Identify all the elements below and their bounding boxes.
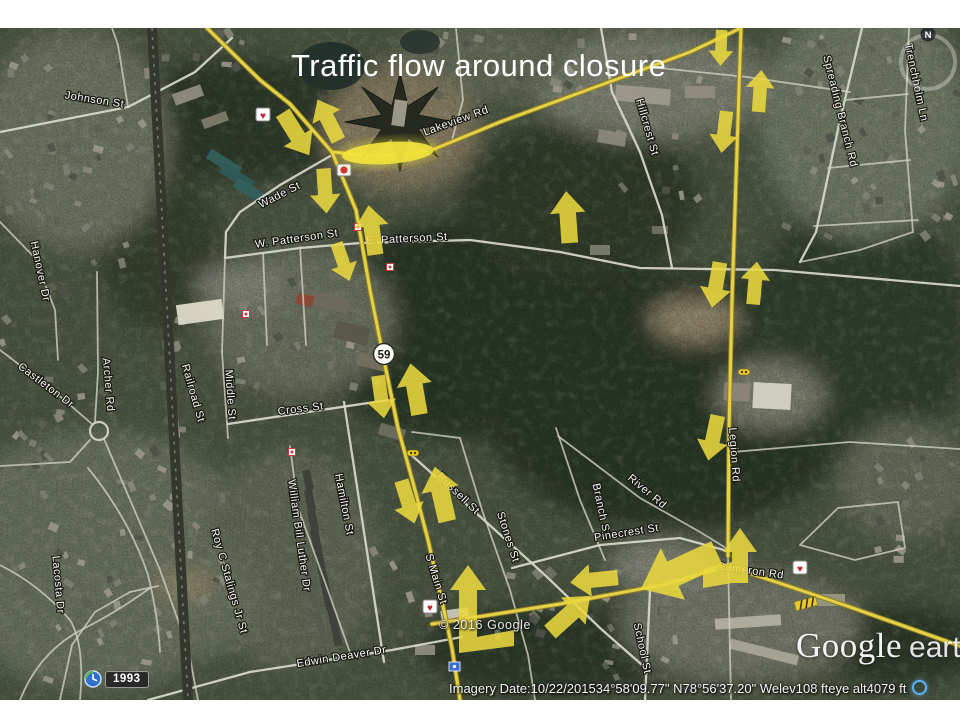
copyright-watermark: © 2016 Google [439,618,531,632]
imagery-date-label: Imagery Date: [449,681,531,696]
historical-imagery-control[interactable]: 1993 [84,670,149,688]
satellite-map-viewport[interactable]: ♥ ♥ ♥ [0,28,960,700]
slide-title: Traffic flow around closure [291,48,666,84]
traffic-signal-icon [407,450,419,456]
eye-altitude-value: 4079 ft [867,681,907,696]
traffic-signal-icon [738,369,750,375]
svg-text:♥: ♥ [427,603,433,614]
svg-text:♥: ♥ [797,564,803,575]
elevation-value: 108 ft [796,681,829,696]
streaming-status-icon [912,680,927,695]
camera-placemark-icon [337,164,351,176]
compass-north-label: N [925,30,932,41]
slide-canvas: ♥ ♥ ♥ [0,0,960,720]
hospital-placemark-icon: ♥ [423,600,437,614]
poi-square-icon [387,264,394,271]
status-bar: Imagery Date:10/22/201534°58'09.77" N78°… [449,680,954,696]
route-59-shield: 59 [374,344,395,365]
clock-icon [84,670,102,688]
svg-text:♥: ♥ [260,111,266,122]
eye-altitude-label: eye alt [828,681,866,696]
route-shield-number: 59 [378,350,391,362]
google-earth-logo: Googleearth [796,626,960,666]
hospital-placemark-icon: ♥ [256,108,270,122]
lodging-icon [449,662,460,671]
latitude-value: 34°58'09.77" N [596,681,683,696]
google-logo-text: Google [796,626,902,665]
elevation-label: elev [772,681,796,696]
longitude-value: 78°56'37.20" W [682,681,771,696]
imagery-date-value: 10/22/2015 [531,681,596,696]
imagery-year-badge: 1993 [105,671,149,688]
earth-logo-text: earth [909,631,960,664]
hospital-placemark-icon: ♥ [793,561,807,575]
poi-square-icon [289,449,296,456]
poi-square-icon [243,311,250,318]
